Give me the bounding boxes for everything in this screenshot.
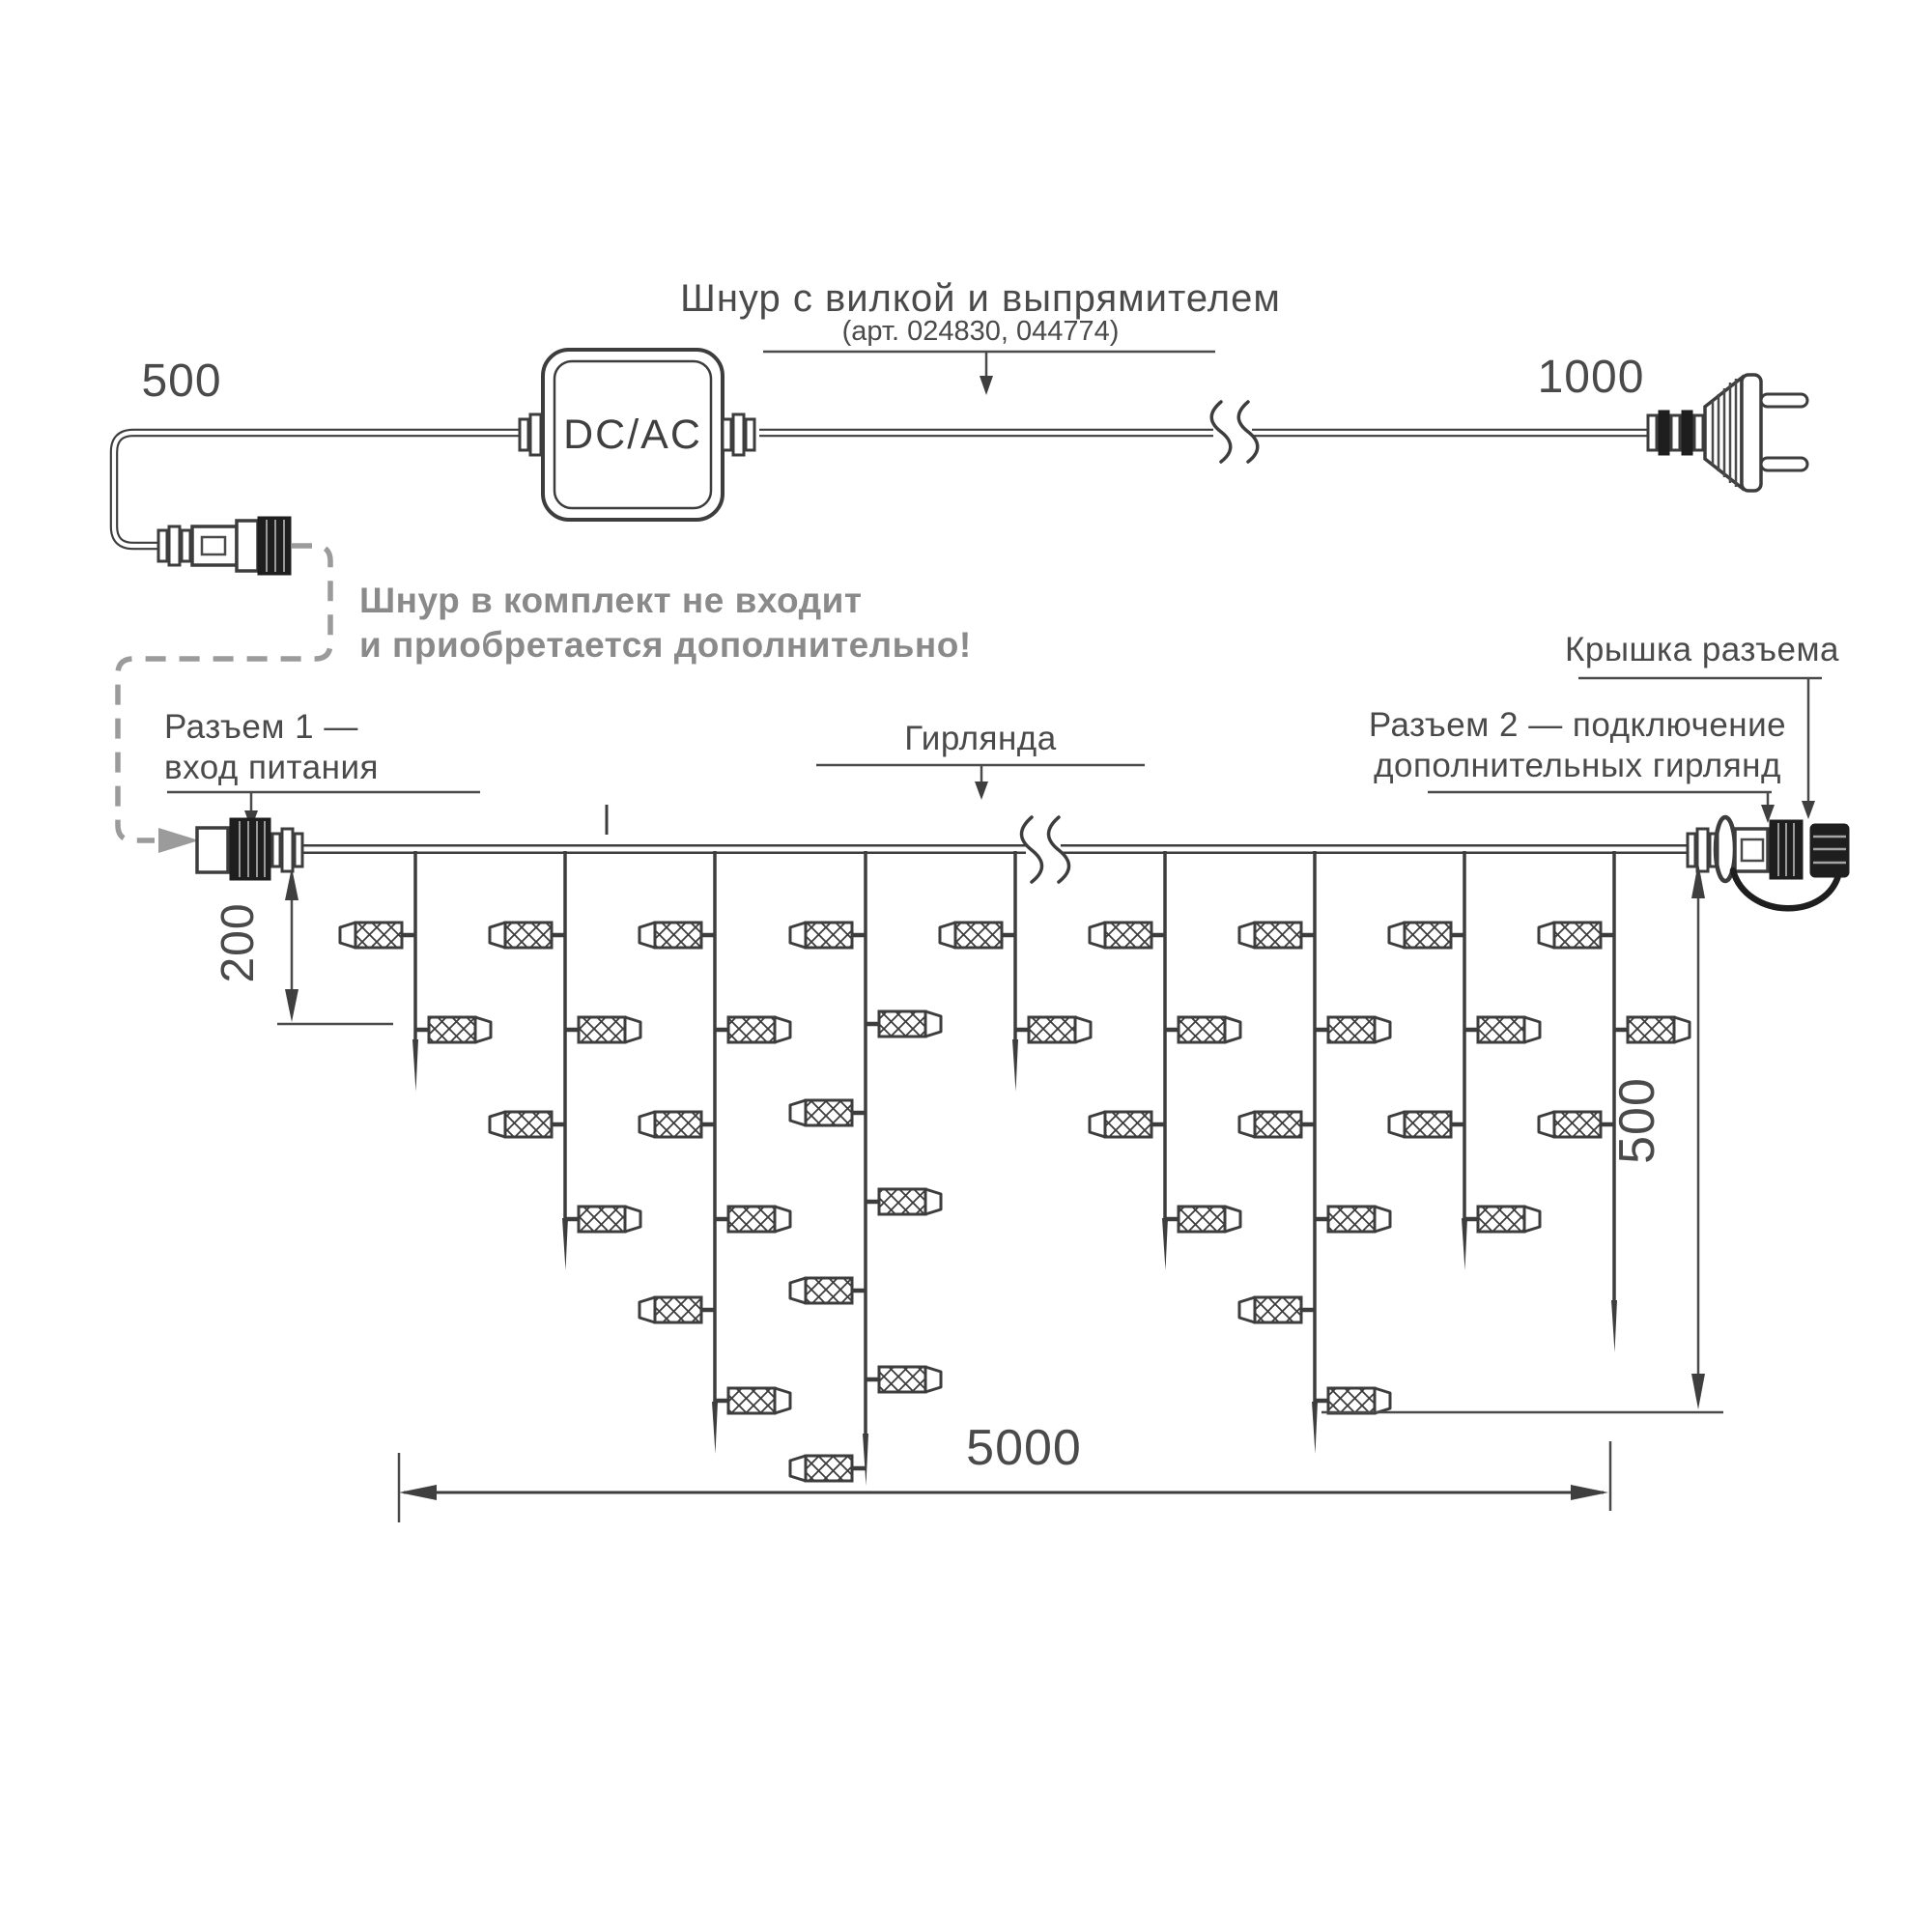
icicle-drop — [790, 851, 941, 1486]
bulb-body — [1255, 1297, 1301, 1322]
led-bulb — [1464, 1017, 1540, 1042]
led-bulb — [790, 1456, 866, 1481]
bulb-cap-icon — [1239, 923, 1255, 948]
led-bulb — [1165, 1017, 1240, 1042]
bulb-cap-icon — [639, 1297, 655, 1322]
led-bulb — [866, 1189, 941, 1214]
bulb-body — [1478, 1017, 1524, 1042]
bulb-body — [1255, 1112, 1301, 1137]
led-bulb — [940, 923, 1015, 948]
note: Шнур в комплект не входит и приобретаетс… — [359, 581, 972, 665]
connector-cap — [1810, 824, 1849, 877]
led-bulb — [715, 1207, 790, 1232]
drop-tip-icon — [1462, 1218, 1467, 1270]
connector-2 — [1688, 817, 1849, 908]
arrow-down-icon — [975, 781, 988, 800]
bulb-cap-icon — [925, 1011, 941, 1037]
plug-prong — [1761, 458, 1807, 470]
drop-tip-icon — [412, 1039, 418, 1092]
dimension-500-height: 500 — [1321, 863, 1723, 1412]
led-bulb — [1315, 1388, 1390, 1413]
led-bulb — [1539, 1112, 1614, 1137]
cord-1000-segment — [759, 402, 1648, 462]
drop-tip-icon — [1012, 1039, 1018, 1092]
bulb-body — [1328, 1207, 1375, 1232]
bulb-cap-icon — [775, 1017, 790, 1042]
dim-garland-length: 5000 — [966, 1420, 1082, 1476]
led-bulb — [1389, 923, 1464, 948]
dashed-route — [118, 546, 330, 853]
bulb-body — [1628, 1017, 1674, 1042]
dcac-converter: DC/AC — [520, 350, 754, 520]
icicle-drops — [340, 851, 1690, 1486]
led-bulb — [866, 1011, 941, 1037]
bulb-cap-icon — [1539, 923, 1554, 948]
bulb-body — [728, 1207, 775, 1232]
bulb-cap-icon — [1090, 1112, 1105, 1137]
bulb-cap-icon — [1389, 923, 1405, 948]
bulb-cap-icon — [1539, 1112, 1554, 1137]
led-bulb — [639, 1297, 715, 1322]
diagram-page: DC/AC 500 1000 Шнур с вилкой — [0, 0, 1932, 1932]
bulb-body — [1179, 1207, 1225, 1232]
led-bulb — [1389, 1112, 1464, 1137]
led-bulb — [866, 1367, 941, 1392]
note-line2: и приобретается дополнительно! — [359, 625, 972, 665]
icicle-drop — [1090, 851, 1240, 1270]
bulb-cap-icon — [1524, 1207, 1540, 1232]
bulb-body — [505, 923, 552, 948]
dim-garland-height: 500 — [1609, 1077, 1665, 1164]
bulb-body — [806, 1278, 852, 1303]
led-bulb — [790, 923, 866, 948]
bulb-body — [1405, 1112, 1451, 1137]
led-bulb — [490, 923, 565, 948]
arrow-right-icon — [1571, 1485, 1608, 1500]
bulb-cap-icon — [1225, 1207, 1240, 1232]
garland — [197, 805, 1849, 1486]
bulb-body — [1105, 1112, 1151, 1137]
garland-wire — [301, 805, 1688, 882]
garland-label: Гирлянда — [904, 720, 1056, 757]
arrow-down-icon — [980, 376, 993, 395]
cap-label: Крышка разъема — [1565, 631, 1839, 668]
led-bulb — [490, 1112, 565, 1137]
bulb-cap-icon — [625, 1207, 640, 1232]
bulb-cap-icon — [490, 923, 505, 948]
note-line1: Шнур в комплект не входит — [359, 581, 862, 620]
bulb-body — [806, 1456, 852, 1481]
led-bulb — [790, 1278, 866, 1303]
bulb-body — [1179, 1017, 1225, 1042]
bulb-cap-icon — [940, 923, 955, 948]
bulb-body — [429, 1017, 475, 1042]
connector1-label-line2: вход питания — [164, 749, 379, 786]
led-bulb — [565, 1017, 640, 1042]
icicle-drop — [940, 851, 1091, 1092]
bulb-body — [655, 923, 701, 948]
led-bulb — [1239, 1112, 1315, 1137]
cord-break-icon — [1211, 402, 1231, 462]
led-bulb — [415, 1017, 491, 1042]
bulb-body — [1405, 923, 1451, 948]
cord-callout: Шнур с вилкой и выпрямителем (арт. 02483… — [680, 277, 1281, 395]
bulb-cap-icon — [790, 1100, 806, 1125]
connector1-callout: Разъем 1 — вход питания — [164, 708, 480, 829]
bulb-cap-icon — [625, 1017, 640, 1042]
bulb-body — [806, 1100, 852, 1125]
led-bulb — [1090, 923, 1165, 948]
led-bulb — [790, 1100, 866, 1125]
bulb-cap-icon — [639, 923, 655, 948]
bulb-cap-icon — [790, 923, 806, 948]
icicle-drop — [1239, 851, 1390, 1454]
bulb-body — [879, 1011, 925, 1037]
bulb-body — [1029, 1017, 1075, 1042]
bulb-cap-icon — [1239, 1297, 1255, 1322]
led-bulb — [639, 923, 715, 948]
bulb-cap-icon — [925, 1367, 941, 1392]
bulb-body — [728, 1388, 775, 1413]
connector1-label-line1: Разъем 1 — — [164, 708, 358, 746]
bulb-cap-icon — [475, 1017, 491, 1042]
drop-tip-icon — [1162, 1218, 1168, 1270]
garland-callout: Гирлянда — [816, 720, 1145, 800]
drop-tip-icon — [562, 1218, 568, 1270]
bulb-body — [655, 1297, 701, 1322]
arrow-down-icon — [1802, 801, 1815, 819]
dim-left-cord: 500 — [141, 355, 221, 407]
wiring-diagram: DC/AC 500 1000 Шнур с вилкой — [0, 0, 1932, 1932]
drop-tip-icon — [1611, 1300, 1617, 1352]
led-bulb — [340, 923, 415, 948]
arrow-down-icon — [285, 989, 298, 1022]
bulb-cap-icon — [340, 923, 355, 948]
led-bulb — [1315, 1207, 1390, 1232]
bulb-cap-icon — [1225, 1017, 1240, 1042]
bulb-body — [579, 1207, 625, 1232]
bulb-cap-icon — [775, 1207, 790, 1232]
arrow-right-icon — [158, 828, 199, 853]
led-bulb — [565, 1207, 640, 1232]
bulb-body — [955, 923, 1002, 948]
bulb-cap-icon — [1090, 923, 1105, 948]
bulb-cap-icon — [639, 1112, 655, 1137]
bulb-cap-icon — [1239, 1112, 1255, 1137]
led-bulb — [639, 1112, 715, 1137]
bulb-body — [655, 1112, 701, 1137]
bulb-cap-icon — [1389, 1112, 1405, 1137]
plug-prong — [1761, 394, 1807, 407]
dim-drop-offset: 200 — [213, 902, 264, 982]
cord-callout-subtitle: (арт. 024830, 044774) — [842, 316, 1120, 347]
bulb-body — [1328, 1017, 1375, 1042]
bulb-cap-icon — [1674, 1017, 1690, 1042]
bulb-cap-icon — [1375, 1388, 1390, 1413]
cord-end-connector — [158, 517, 291, 575]
icicle-drop — [1389, 851, 1540, 1270]
cord-callout-title: Шнур с вилкой и выпрямителем — [680, 277, 1281, 320]
drop-tip-icon — [712, 1402, 718, 1454]
bulb-cap-icon — [1524, 1017, 1540, 1042]
dcac-label: DC/AC — [563, 412, 702, 458]
bulb-body — [1328, 1388, 1375, 1413]
connector2-label-line1: Разъем 2 — подключение — [1369, 706, 1786, 744]
bulb-cap-icon — [1075, 1017, 1091, 1042]
bulb-body — [879, 1367, 925, 1392]
bulb-body — [1105, 923, 1151, 948]
power-cord-section: DC/AC 500 1000 Шнур с вилкой — [114, 277, 1807, 575]
led-bulb — [1090, 1112, 1165, 1137]
arrow-left-icon — [399, 1485, 437, 1500]
arrow-down-icon — [1691, 1374, 1705, 1409]
bulb-body — [806, 923, 852, 948]
led-bulb — [715, 1388, 790, 1413]
icicle-drop — [490, 851, 640, 1270]
bulb-body — [1478, 1207, 1524, 1232]
dimension-5000: 5000 — [399, 1420, 1610, 1522]
bulb-body — [1554, 1112, 1601, 1137]
bulb-body — [728, 1017, 775, 1042]
bulb-cap-icon — [1375, 1207, 1390, 1232]
icicle-drop — [639, 851, 790, 1454]
connector2-callout: Разъем 2 — подключение дополнительных ги… — [1369, 706, 1786, 823]
bulb-body — [879, 1189, 925, 1214]
bulb-body — [1255, 923, 1301, 948]
drop-tip-icon — [1312, 1402, 1318, 1454]
led-bulb — [1539, 923, 1614, 948]
power-plug — [1648, 375, 1807, 491]
led-bulb — [1015, 1017, 1091, 1042]
bulb-cap-icon — [490, 1112, 505, 1137]
led-bulb — [1239, 1297, 1315, 1322]
bulb-cap-icon — [790, 1456, 806, 1481]
icicle-drop — [340, 851, 491, 1092]
bulb-body — [1554, 923, 1601, 948]
bulb-body — [355, 923, 402, 948]
connector-1 — [197, 818, 302, 880]
led-bulb — [1315, 1017, 1390, 1042]
dim-right-cord: 1000 — [1538, 352, 1645, 403]
bulb-cap-icon — [790, 1278, 806, 1303]
drop-tip-icon — [863, 1434, 868, 1486]
led-bulb — [1464, 1207, 1540, 1232]
led-bulb — [1614, 1017, 1690, 1042]
bulb-body — [505, 1112, 552, 1137]
bulb-cap-icon — [925, 1189, 941, 1214]
bulb-body — [579, 1017, 625, 1042]
led-bulb — [715, 1017, 790, 1042]
bulb-cap-icon — [775, 1388, 790, 1413]
led-bulb — [1239, 923, 1315, 948]
led-bulb — [1165, 1207, 1240, 1232]
connector2-label-line2: дополнительных гирлянд — [1374, 747, 1781, 784]
bulb-cap-icon — [1375, 1017, 1390, 1042]
